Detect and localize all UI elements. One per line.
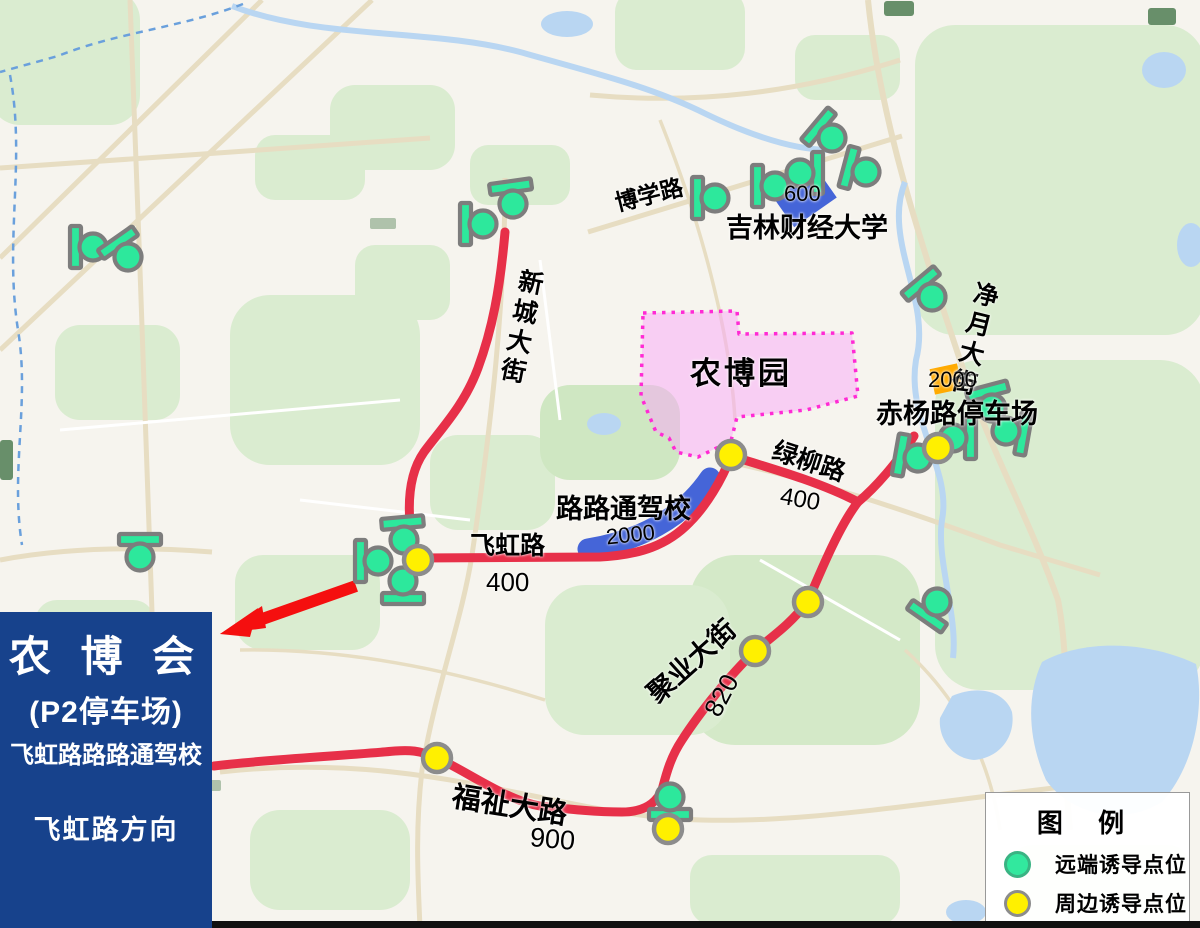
label-distance-2000-school: 2000 bbox=[605, 520, 656, 551]
near-guidance-marker[interactable] bbox=[794, 588, 822, 616]
label-distance-400-feihong: 400 bbox=[486, 567, 529, 598]
far-guidance-marker[interactable] bbox=[901, 266, 957, 321]
near-guidance-marker[interactable] bbox=[924, 434, 952, 462]
panel-subtitle2: 飞虹路路路通驾校 bbox=[0, 735, 212, 770]
near-guidance-marker[interactable] bbox=[654, 815, 682, 843]
legend: 图 例 远端诱导点位 周边诱导点位 bbox=[985, 792, 1190, 922]
legend-item-label: 远端诱导点位 bbox=[1055, 849, 1187, 879]
label-distance-600: 600 bbox=[784, 181, 821, 207]
far-guidance-dot-icon bbox=[1004, 851, 1031, 878]
panel-title: 农 博 会 bbox=[0, 623, 212, 684]
label-feihong-road: 飞虹路 bbox=[470, 526, 545, 562]
legend-item-label: 周边诱导点位 bbox=[1055, 888, 1187, 918]
far-guidance-marker[interactable] bbox=[98, 226, 153, 280]
near-guidance-marker[interactable] bbox=[423, 744, 451, 772]
direction-arrow bbox=[220, 586, 356, 637]
far-guidance-marker[interactable] bbox=[838, 146, 884, 196]
map-canvas[interactable]: 博学路 吉林财经大学 600 新城大街 净月大街 农博园 赤杨路停车场 2000… bbox=[0, 0, 1200, 928]
label-expo-park: 农博园 bbox=[690, 348, 792, 393]
route-xincheng-street[interactable] bbox=[409, 232, 505, 558]
label-distance-2000-chiyang: 2000 bbox=[928, 367, 977, 393]
near-guidance-dot-icon bbox=[1004, 890, 1031, 917]
far-guidance-marker[interactable] bbox=[119, 534, 161, 571]
label-chiyang-parking: 赤杨路停车场 bbox=[876, 392, 1038, 431]
label-driving-school: 路路通驾校 bbox=[556, 487, 691, 526]
label-university: 吉林财经大学 bbox=[726, 206, 888, 245]
legend-title: 图 例 bbox=[986, 803, 1189, 840]
far-guidance-marker[interactable] bbox=[907, 579, 962, 633]
legend-item-near: 周边诱导点位 bbox=[1004, 888, 1189, 918]
near-guidance-marker[interactable] bbox=[741, 637, 769, 665]
far-guidance-marker[interactable] bbox=[460, 203, 497, 245]
legend-item-far: 远端诱导点位 bbox=[1004, 849, 1189, 879]
panel-direction-label: 飞虹路方向 bbox=[0, 808, 212, 847]
near-guidance-marker[interactable] bbox=[404, 546, 432, 574]
far-guidance-marker[interactable] bbox=[692, 177, 729, 219]
far-guidance-marker[interactable] bbox=[489, 178, 536, 220]
bottom-bar bbox=[212, 921, 1200, 928]
far-guidance-marker[interactable] bbox=[355, 540, 392, 582]
label-distance-900: 900 bbox=[529, 822, 577, 857]
panel-subtitle: (P2停车场) bbox=[0, 687, 212, 731]
near-guidance-marker[interactable] bbox=[717, 441, 745, 469]
info-panel: 农 博 会 (P2停车场) 飞虹路路路通驾校 飞虹路方向 bbox=[0, 612, 212, 928]
